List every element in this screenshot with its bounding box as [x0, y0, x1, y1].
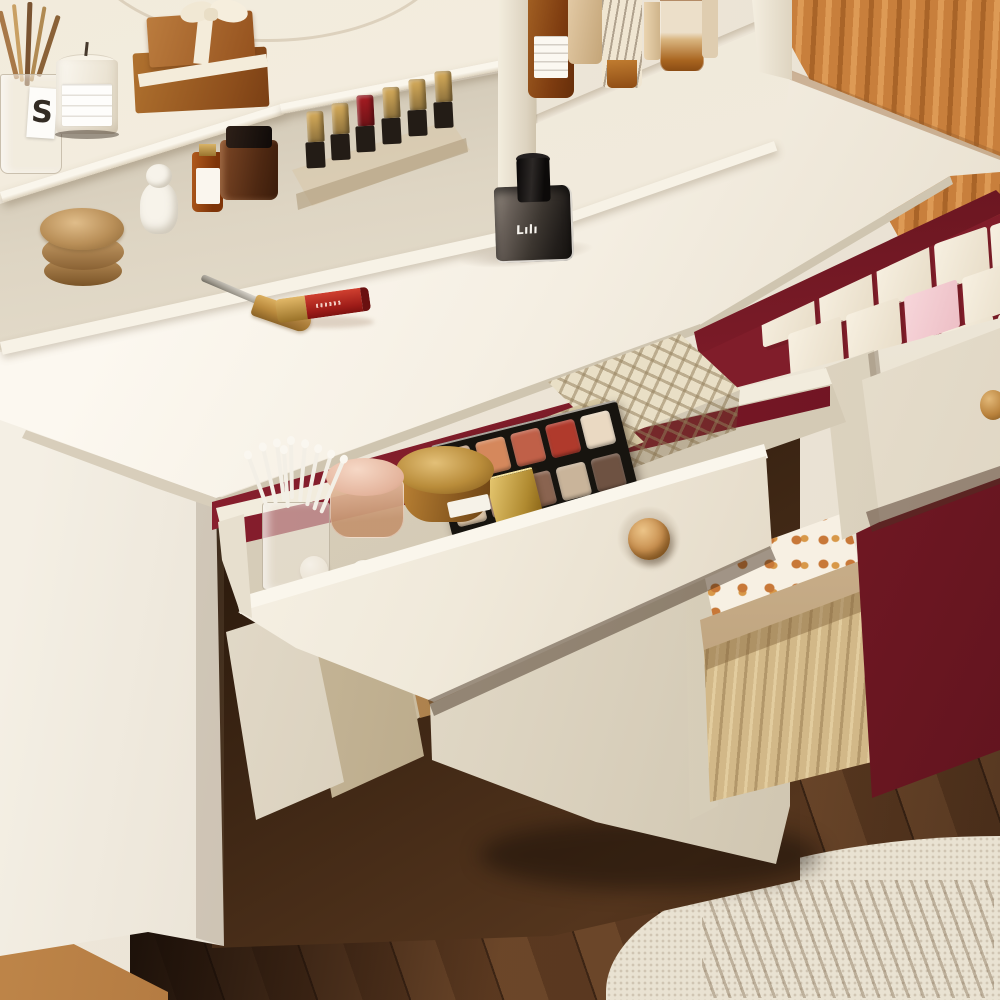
- lipstick-rack: [0, 0, 1000, 1000]
- lipstick-base: [407, 110, 427, 137]
- lipstick-base: [305, 142, 325, 169]
- lipstick-cap: [331, 103, 350, 135]
- lipstick-cap: [356, 95, 375, 127]
- perfume-logo: Lılı: [516, 221, 562, 243]
- lipstick-cap: [382, 87, 401, 119]
- foundation-bottle: [660, 0, 704, 72]
- vanity-product-photo: S Lılı: [0, 0, 1000, 1000]
- foundation-bottle-back: [702, 0, 718, 58]
- lipstick-base: [433, 102, 453, 129]
- lipstick-base: [330, 134, 350, 161]
- perfume-cap: [516, 157, 551, 202]
- striped-tube-window: [607, 60, 637, 88]
- lipstick-base: [381, 118, 401, 145]
- lipstick-cap: [306, 111, 325, 143]
- apothecary-bottle-label: [534, 36, 568, 78]
- lipstick-cap: [408, 79, 427, 111]
- lipstick-cap: [434, 71, 453, 103]
- slim-bottle: [644, 2, 661, 60]
- lip-gloss-cap: [275, 295, 308, 323]
- beige-jar: [568, 0, 602, 64]
- lipstick-base: [355, 126, 375, 153]
